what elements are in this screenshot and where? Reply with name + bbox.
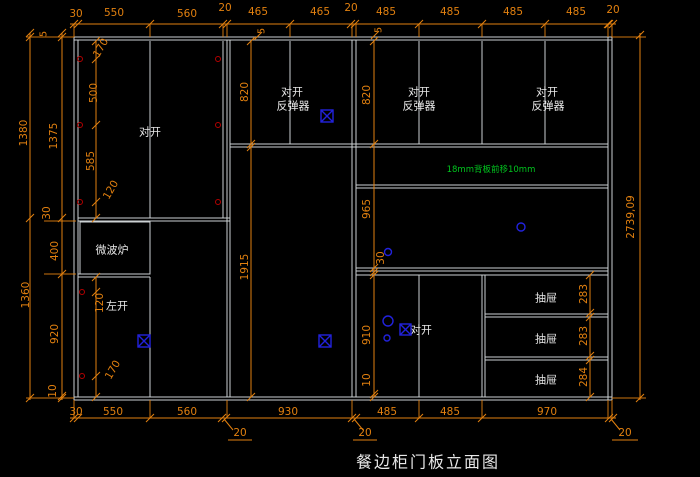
- dim-top-20c: 20: [606, 4, 619, 16]
- dim-mid-820: 820: [239, 82, 251, 102]
- dim-hinge-low-120: 120: [94, 293, 106, 313]
- label-left-open: 左开: [106, 300, 128, 313]
- dim-bot-970: 970: [537, 406, 557, 418]
- dim-top-30: 30: [69, 8, 82, 20]
- hinge-icon: [216, 57, 221, 62]
- dim-mid-1915: 1915: [239, 254, 251, 281]
- label-pair-open-mid: 对开: [281, 85, 303, 99]
- hinge-icon: [216, 200, 221, 205]
- dim-bot-485b: 485: [440, 406, 460, 418]
- door-labels: 对开 对开 反弹器 对开 反弹器 对开 反弹器 微波炉 左开 对开 抽屉 抽屉 …: [96, 85, 565, 387]
- handle-box-icon: [319, 335, 331, 347]
- dim-total-height: 2739,09: [625, 195, 637, 238]
- label-pair-open-right1: 对开: [408, 85, 430, 99]
- dim-left-400: 400: [49, 241, 61, 261]
- dim-bot-gap-20b: 20: [358, 427, 371, 439]
- dim-top-20a: 20: [218, 2, 231, 14]
- dim-reveal-5b: 5: [374, 27, 385, 33]
- cabinet-elevation-drawing: 30 550 560 20 465 465 20 485 485 485 485…: [0, 0, 700, 477]
- dim-top-485d: 485: [566, 6, 586, 18]
- dim-reveal-5a: 5: [257, 28, 268, 34]
- label-pair-open-bottom: 对开: [410, 323, 432, 337]
- label-drawer-1: 抽屉: [535, 291, 557, 305]
- dim-top-560: 560: [177, 8, 197, 20]
- dim-bot-gap-20c: 20: [618, 427, 631, 439]
- dim-right-965: 965: [361, 199, 373, 219]
- label-rebounder-mid: 反弹器: [277, 99, 310, 113]
- dim-bot-30: 30: [69, 406, 82, 418]
- dim-left-920: 920: [49, 324, 61, 344]
- dim-top-20b: 20: [344, 2, 357, 14]
- handle-circle-icon: [384, 335, 390, 341]
- dim-hinge-500: 500: [88, 83, 100, 103]
- dim-top-465a: 465: [248, 6, 268, 18]
- handle-circle-icon: [383, 316, 393, 326]
- dim-hinge-low-170: 170: [103, 358, 123, 381]
- handle-box-icon: [138, 335, 150, 347]
- hardware-symbols: [138, 110, 525, 347]
- label-pair-open-right2: 对开: [536, 85, 558, 99]
- dim-left-5: 5: [39, 31, 50, 37]
- dim-bot-930: 930: [278, 406, 298, 418]
- hinge-icon: [80, 290, 85, 295]
- dim-drawer-283b: 283: [578, 326, 590, 346]
- dim-right-820: 820: [361, 85, 373, 105]
- bottom-dimensions: 30 550 560 930 485 485 970 20 20 20: [69, 406, 631, 439]
- dim-top-485c: 485: [503, 6, 523, 18]
- label-rebounder-right1: 反弹器: [403, 99, 436, 113]
- hinge-icon: [216, 123, 221, 128]
- dim-left-1360: 1360: [20, 282, 32, 309]
- dim-right-910: 910: [361, 325, 373, 345]
- dim-bot-550: 550: [103, 406, 123, 418]
- handle-circle-icon: [517, 223, 525, 231]
- dim-hinge-120: 120: [101, 178, 121, 201]
- handle-box-icon: [321, 110, 333, 122]
- cad-drawing-canvas: 30 550 560 20 465 465 20 485 485 485 485…: [0, 0, 700, 477]
- label-microwave: 微波炉: [96, 243, 129, 257]
- dim-drawer-283a: 283: [578, 284, 590, 304]
- dim-drawer-284: 284: [578, 367, 590, 387]
- dim-top-465b: 465: [310, 6, 330, 18]
- dim-left-30: 30: [41, 206, 53, 219]
- label-drawer-3: 抽屉: [535, 373, 557, 387]
- dim-left-1375: 1375: [48, 123, 60, 150]
- dim-right-10: 10: [361, 373, 373, 386]
- dim-left-10: 10: [47, 384, 59, 397]
- dim-bot-560: 560: [177, 406, 197, 418]
- dim-top-485b: 485: [440, 6, 460, 18]
- drawing-title: 餐边柜门板立面图: [356, 453, 500, 472]
- dim-bot-485a: 485: [377, 406, 397, 418]
- top-dimensions: 30 550 560 20 465 465 20 485 485 485 485…: [69, 2, 619, 34]
- cabinet-structure: [74, 37, 612, 400]
- dim-top-550: 550: [104, 7, 124, 19]
- hinge-icon: [80, 374, 85, 379]
- dim-hinge-585: 585: [85, 151, 97, 171]
- label-rebounder-right2: 反弹器: [532, 99, 565, 113]
- label-drawer-2: 抽屉: [535, 332, 557, 346]
- inner-vertical-dimensions: 820 1915 820 965 30 910 10 283 283 284 2…: [239, 82, 637, 387]
- dim-left-1380: 1380: [18, 120, 30, 147]
- label-pair-open-left: 对开: [139, 125, 161, 139]
- label-back-panel-note: 18mm背板前移10mm: [447, 164, 536, 175]
- dim-bot-gap-20a: 20: [233, 427, 246, 439]
- dim-top-485a: 485: [376, 6, 396, 18]
